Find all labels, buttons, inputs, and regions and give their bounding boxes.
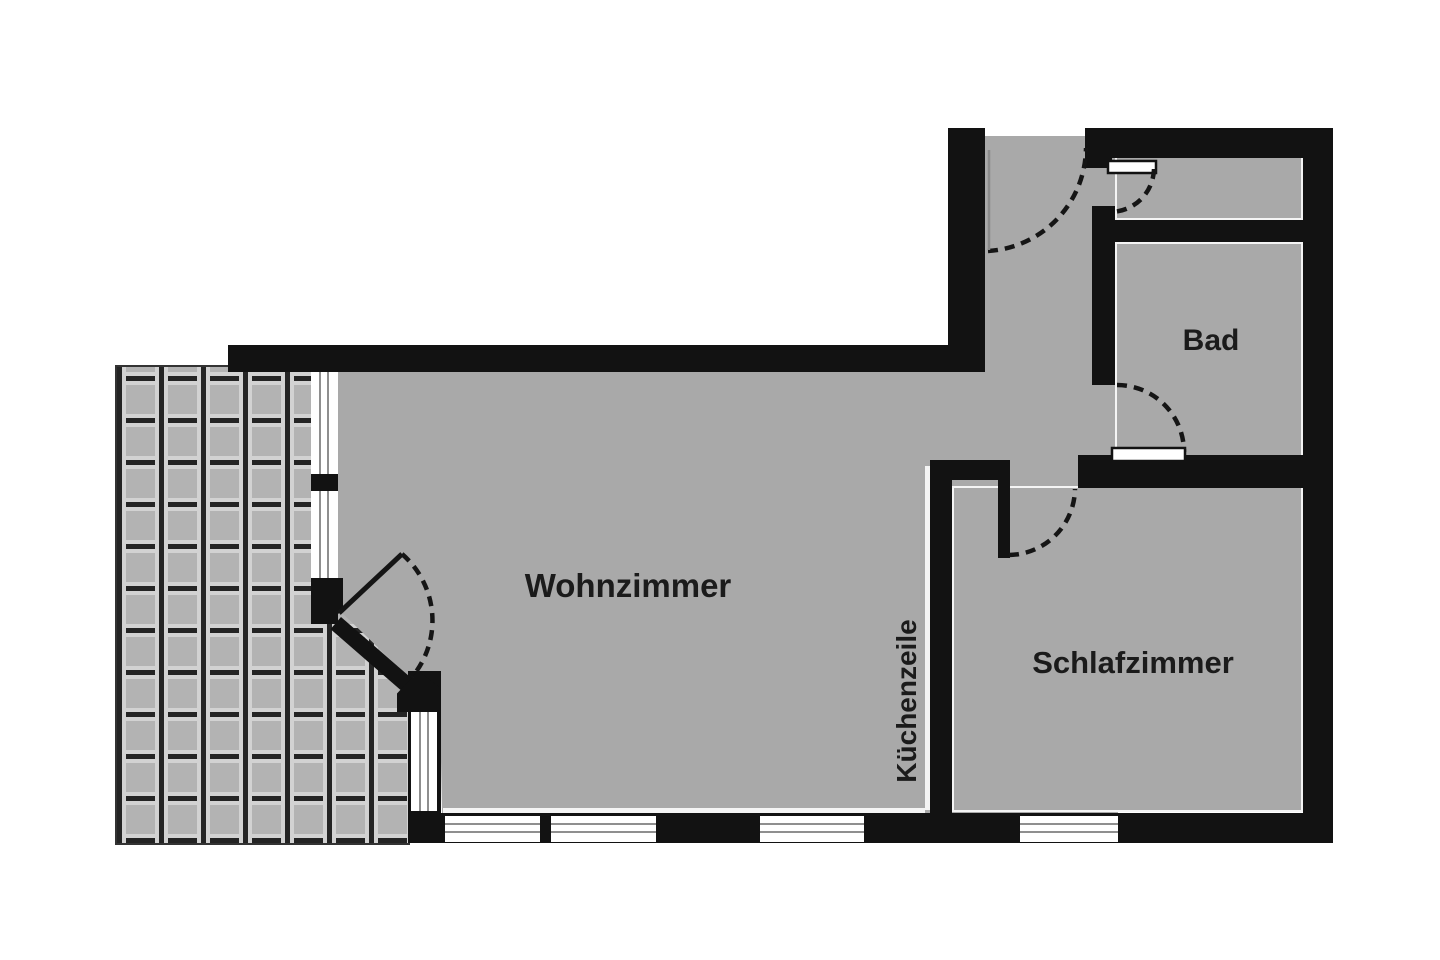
window-bottom-3	[760, 816, 864, 842]
wall-outer-right	[1303, 128, 1333, 843]
window-bottom-1	[445, 816, 540, 842]
wall-top-living-room	[228, 345, 985, 372]
window-left-3	[411, 712, 437, 811]
wall-kuechenzeile	[930, 460, 952, 843]
closet-floor	[1115, 156, 1303, 220]
floor-plan-canvas: Wohnzimmer Schlafzimmer Bad Küchenzeile	[0, 0, 1440, 960]
wall-hallway-left	[948, 128, 985, 345]
wall-bad-bottom	[1078, 455, 1303, 488]
window-left-1	[311, 372, 338, 474]
wall-closet-bad-divider	[1110, 220, 1303, 242]
wall-hallway-bad-divider	[1092, 206, 1115, 385]
window-left-2	[311, 491, 338, 578]
wall-outer-bottom	[409, 813, 1333, 843]
label-wohnzimmer: Wohnzimmer	[478, 568, 778, 604]
window-bottom-4	[1020, 816, 1118, 842]
label-kuechenzeile: Küchenzeile	[892, 601, 922, 801]
wall-entrance-hinge-block	[1085, 128, 1112, 168]
window-bottom-2	[551, 816, 656, 842]
wall-top-right	[1085, 128, 1333, 158]
label-schlafzimmer: Schlafzimmer	[983, 646, 1283, 680]
label-bad: Bad	[1136, 324, 1286, 357]
wall-schlafzimmer-door-nub	[952, 460, 1010, 480]
wall-schlafzimmer-door-jamb	[998, 478, 1010, 558]
